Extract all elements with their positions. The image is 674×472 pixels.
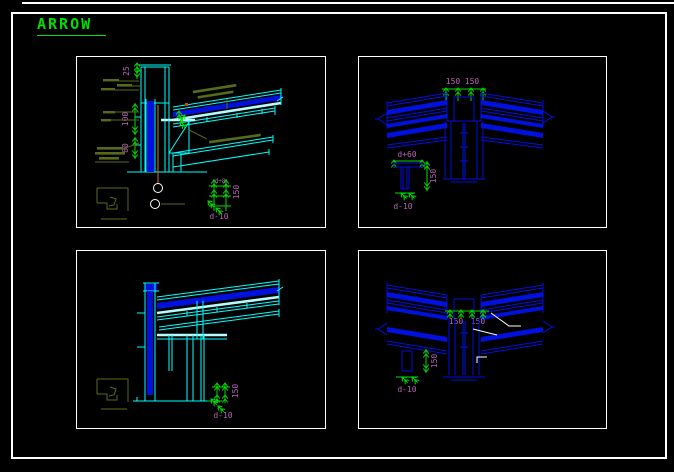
ridge-notch <box>447 93 481 121</box>
bolt-spacing-detail: 150 d-10 <box>207 383 240 420</box>
roof-left <box>387 283 447 320</box>
dim-150-left: 150 <box>446 77 461 86</box>
roof-left <box>387 93 447 129</box>
detail-spacing-label: 150 <box>430 354 439 369</box>
column-cap <box>139 65 171 103</box>
break-mark-left <box>375 113 387 125</box>
center-column <box>443 121 485 182</box>
roof-right <box>481 283 543 320</box>
detail-spacing-label: 150 <box>232 185 241 200</box>
dim-100: 100 <box>121 112 130 127</box>
bolt-length-label: 150 <box>429 169 438 184</box>
detail-spacing-label: 150 <box>231 384 240 399</box>
detail-note-label: d-10 <box>397 385 416 394</box>
sheet-top-border <box>22 2 674 4</box>
panel-ridge-detail: 150 150 <box>358 56 607 228</box>
ridge-drawing: 150 150 <box>359 57 606 227</box>
detail-gauge-label: d+8 <box>215 178 226 185</box>
break-mark-left <box>375 323 387 335</box>
gutter-profile <box>97 188 128 219</box>
weld-dot <box>185 103 188 106</box>
eave-drawing: 150 d-10 <box>77 251 325 428</box>
drawing-title: ARROW <box>37 15 106 36</box>
bolt-note-label: d-10 <box>393 202 412 211</box>
roof-beam <box>157 279 283 330</box>
dim-150-left: 150 <box>449 317 464 326</box>
panel-eave-detail: 150 d-10 <box>76 250 326 429</box>
panel-eave-corner-detail: 25 100 80 <box>76 56 326 228</box>
roof-right <box>481 93 543 128</box>
bolt-detail: d+60 150 d-10 <box>391 150 438 211</box>
break-mark-right <box>543 321 555 333</box>
eave-corner-drawing: 25 100 80 <box>77 57 325 227</box>
valley-drawing: 150 150 <box>359 251 606 428</box>
center-column <box>443 319 485 380</box>
detail-note-label: d-10 <box>209 212 228 221</box>
bolt-width-label: d+60 <box>397 150 416 159</box>
dim-150-right: 150 <box>465 77 480 86</box>
cad-sheet: ARROW <box>0 0 674 472</box>
detail-note-label: d-10 <box>213 411 232 420</box>
panel-valley-detail: 150 150 <box>358 250 607 429</box>
gutter-profile <box>97 379 128 409</box>
dim-25: 25 <box>122 66 131 76</box>
wall-panel <box>146 99 155 172</box>
break-mark-right <box>543 111 555 123</box>
bolt-spacing-detail: d+8 150 d-10 <box>206 178 241 221</box>
valley-notch <box>447 295 481 319</box>
bolt-detail: 150 d-10 <box>396 349 439 394</box>
